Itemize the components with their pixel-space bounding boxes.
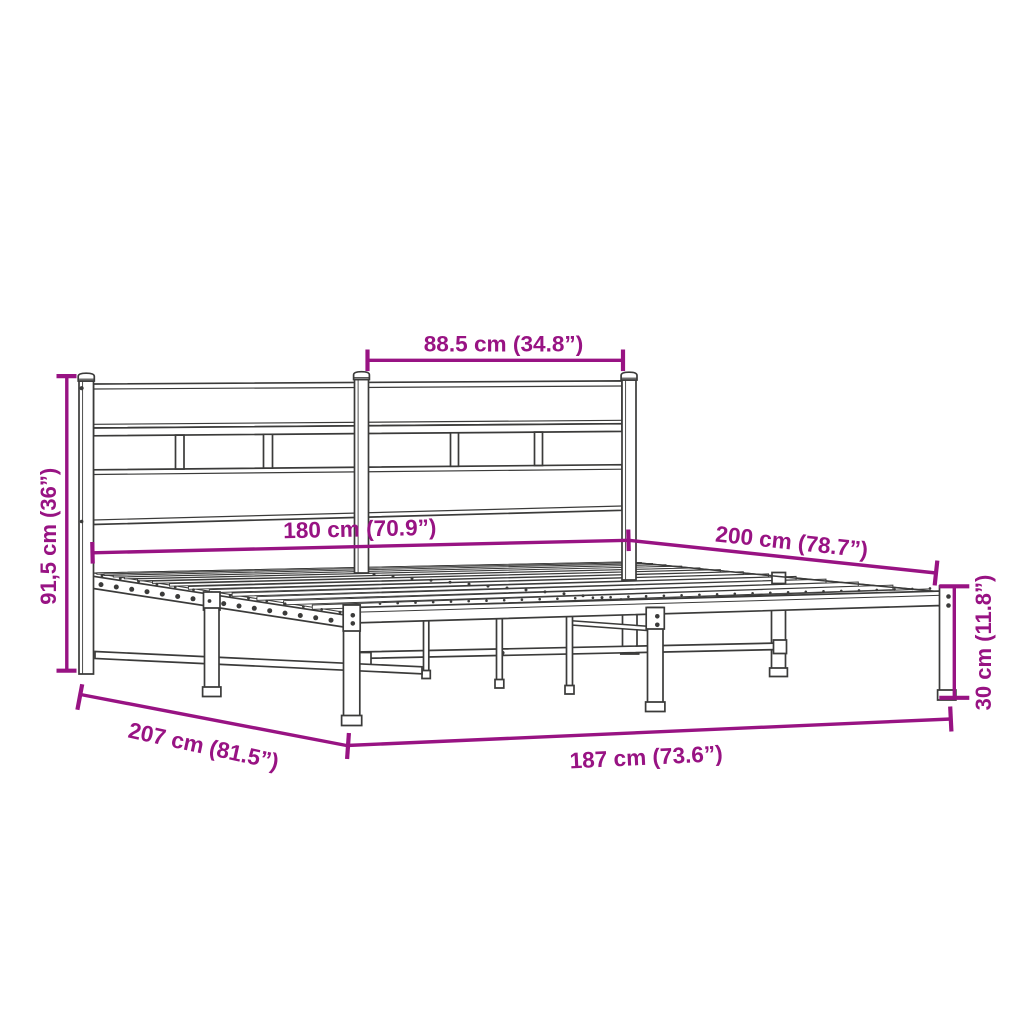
svg-text:91,5 cm (36”): 91,5 cm (36”) [36,468,61,605]
svg-text:30 cm (11.8”): 30 cm (11.8”) [971,575,996,711]
svg-text:88.5 cm (34.8”): 88.5 cm (34.8”) [424,331,584,356]
svg-text:180 cm (70.9”): 180 cm (70.9”) [283,515,437,543]
